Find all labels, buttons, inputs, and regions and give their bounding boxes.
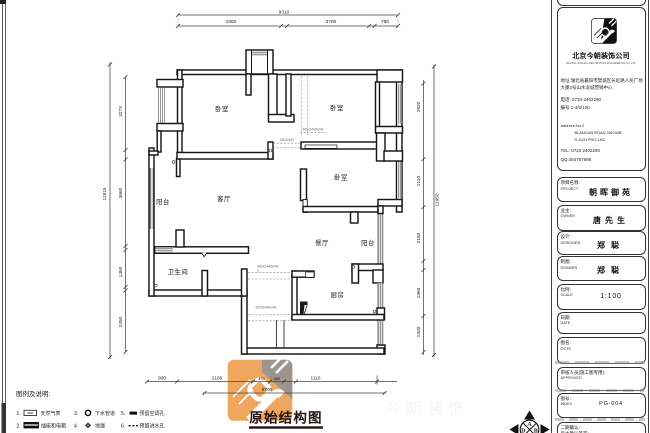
svg-text:1320: 1320 — [416, 326, 422, 337]
svg-text:2150: 2150 — [416, 232, 422, 243]
svg-text:B: B — [534, 428, 538, 433]
svg-text:阳台: 阳台 — [156, 197, 170, 206]
svg-text:1050: 1050 — [226, 19, 237, 25]
svg-text:900: 900 — [158, 376, 166, 382]
svg-text:3660: 3660 — [118, 187, 124, 198]
svg-text:阳台: 阳台 — [361, 238, 375, 247]
svg-text:900x2440x240: 900x2440x240 — [303, 128, 324, 132]
svg-text:3.: 3. — [74, 411, 78, 417]
svg-text:原始结构图: 原始结构图 — [249, 410, 323, 426]
svg-text:预留空调孔: 预留空调孔 — [140, 410, 165, 417]
svg-text:900x2440x240: 900x2440x240 — [256, 306, 277, 310]
svg-text:1360: 1360 — [416, 287, 422, 298]
svg-text:预留进水孔: 预留进水孔 — [140, 423, 165, 430]
svg-text:A: A — [527, 422, 532, 428]
svg-text:2260: 2260 — [118, 316, 124, 327]
svg-text:餐厅: 餐厅 — [315, 238, 329, 247]
svg-text:卧室: 卧室 — [334, 173, 348, 182]
svg-text:今朝装饰: 今朝装饰 — [385, 400, 469, 418]
svg-text:地漏: 地漏 — [95, 423, 105, 430]
svg-text:客厅: 客厅 — [217, 194, 231, 203]
svg-text:卫生间: 卫生间 — [168, 267, 189, 276]
svg-text:图例及说明:: 图例及说明: — [16, 389, 51, 398]
svg-text:天然气表: 天然气表 — [41, 410, 61, 417]
svg-text:2110: 2110 — [416, 176, 422, 187]
svg-text:插座和电箱: 插座和电箱 — [41, 423, 66, 430]
svg-text:卧室: 卧室 — [330, 103, 344, 112]
svg-text:1360: 1360 — [118, 266, 124, 277]
svg-text:2.: 2. — [17, 424, 21, 430]
svg-text:5.: 5. — [121, 411, 125, 417]
svg-text:780: 780 — [381, 19, 389, 25]
svg-text:9700: 9700 — [262, 387, 273, 393]
svg-text:卧室: 卧室 — [215, 104, 229, 113]
svg-text:1.: 1. — [17, 411, 21, 417]
svg-text:1110: 1110 — [311, 376, 321, 382]
svg-text:453: 453 — [258, 377, 264, 381]
svg-text:D: D — [521, 428, 526, 433]
svg-text:11915: 11915 — [102, 187, 108, 200]
svg-text:下水管道: 下水管道 — [95, 410, 115, 417]
svg-text:6.: 6. — [121, 424, 125, 430]
svg-text:11950: 11950 — [435, 193, 441, 206]
svg-text:9310: 9310 — [279, 10, 290, 16]
svg-text:3780: 3780 — [326, 19, 337, 25]
svg-text:600x2440: 600x2440 — [280, 138, 294, 142]
svg-text:885: 885 — [274, 377, 280, 381]
svg-text:4.: 4. — [74, 424, 78, 430]
svg-text:厨房: 厨房 — [331, 290, 345, 299]
svg-text:900x2440x240: 900x2440x240 — [258, 265, 279, 269]
svg-text:2920: 2920 — [416, 101, 422, 112]
svg-text:2180: 2180 — [212, 376, 223, 382]
svg-text:3273: 3273 — [118, 106, 124, 117]
